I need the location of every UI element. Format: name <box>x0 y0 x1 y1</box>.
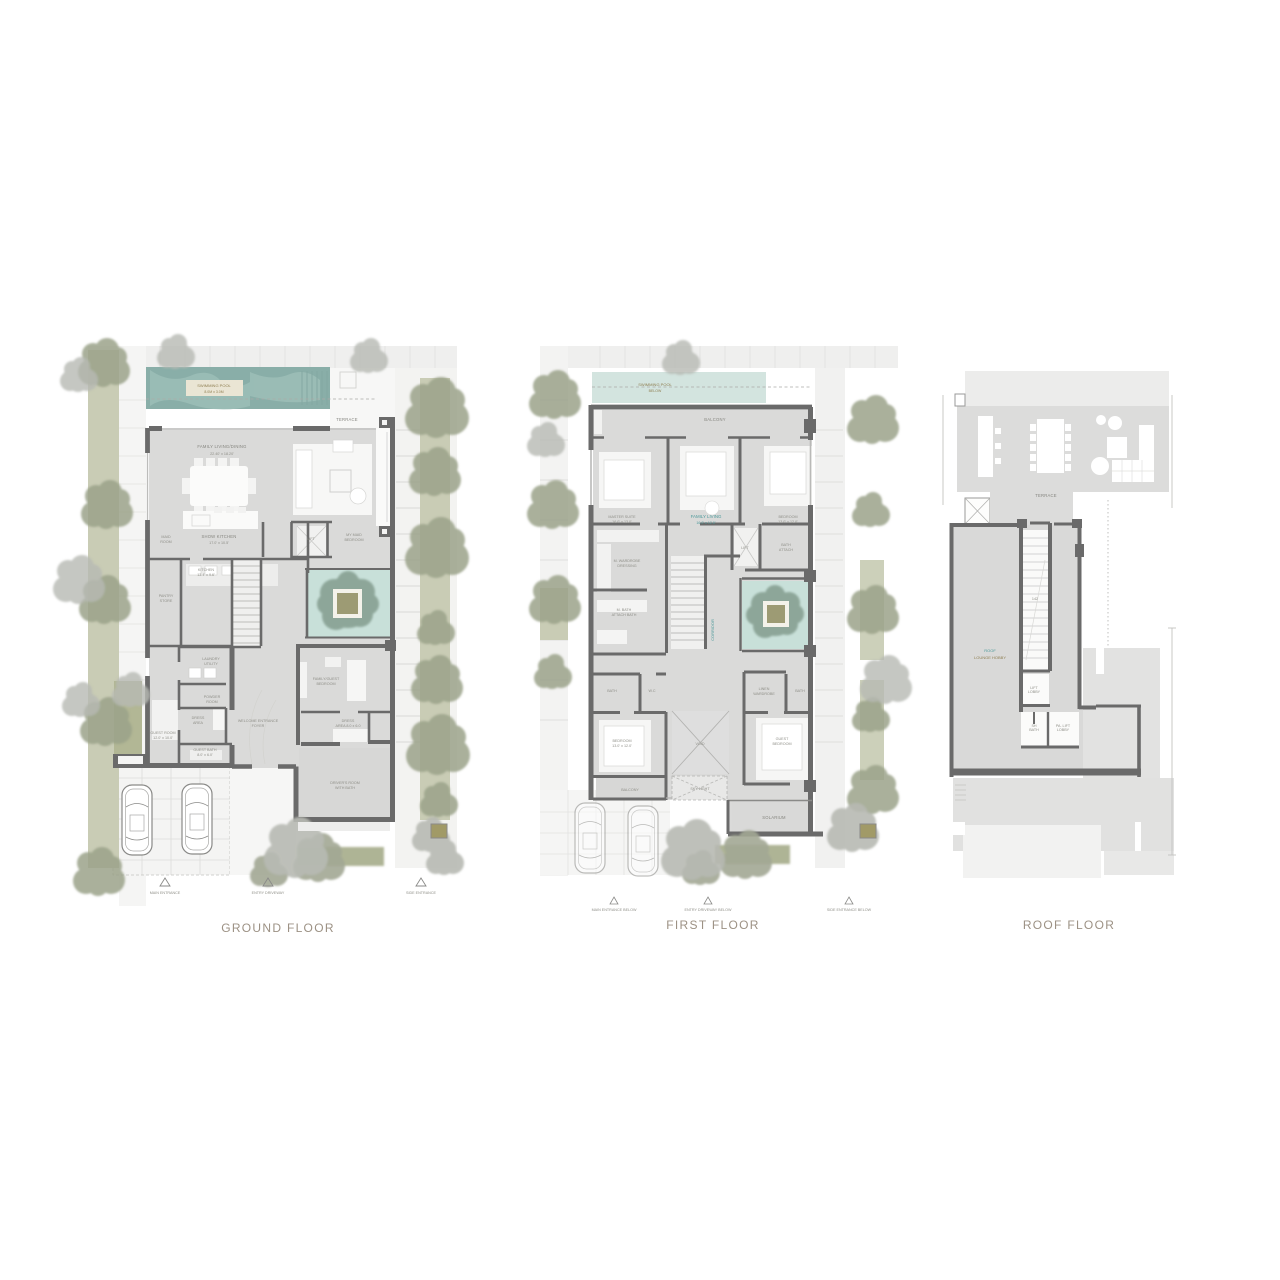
svg-text:MAIN ENTRANCE: MAIN ENTRANCE <box>150 891 181 895</box>
svg-text:SHOW KITCHEN: SHOW KITCHEN <box>202 534 237 539</box>
svg-text:POWDER: POWDER <box>204 695 221 699</box>
svg-text:12.0' x 10.0': 12.0' x 10.0' <box>153 736 173 740</box>
svg-text:17.0' x 10.5': 17.0' x 10.5' <box>209 541 229 545</box>
svg-text:GUEST BATH: GUEST BATH <box>193 748 217 752</box>
svg-text:MAID: MAID <box>161 535 171 539</box>
svg-text:ROOF: ROOF <box>984 648 996 653</box>
svg-text:SKY LIGHT: SKY LIGHT <box>690 787 710 791</box>
svg-text:W.C: W.C <box>649 689 656 693</box>
svg-text:DRESS: DRESS <box>192 716 205 720</box>
svg-text:BALCONY: BALCONY <box>704 417 725 422</box>
svg-text:8.0' x 6.0': 8.0' x 6.0' <box>197 753 213 757</box>
svg-text:ATTACH: ATTACH <box>779 548 794 552</box>
svg-text:VOID: VOID <box>695 742 704 746</box>
svg-text:GUEST ROOM: GUEST ROOM <box>150 731 175 735</box>
svg-text:13.4' x 9.6': 13.4' x 9.6' <box>197 573 215 577</box>
svg-text:BEDROOM: BEDROOM <box>778 515 797 519</box>
svg-text:LOBBY: LOBBY <box>1057 728 1070 732</box>
svg-text:142: 142 <box>1032 597 1038 601</box>
svg-text:ROOM: ROOM <box>206 700 217 704</box>
svg-text:ENTRY DRIVEWAY: ENTRY DRIVEWAY <box>252 891 285 895</box>
svg-text:DRESS: DRESS <box>342 719 355 723</box>
svg-text:22.40' x 18.20': 22.40' x 18.20' <box>210 452 234 456</box>
svg-text:STORE: STORE <box>160 599 173 603</box>
svg-text:GUEST: GUEST <box>776 737 789 741</box>
svg-text:DRESSING: DRESSING <box>617 564 636 568</box>
svg-text:BEDROOM: BEDROOM <box>316 682 335 686</box>
svg-text:BEDROOM: BEDROOM <box>612 739 631 743</box>
svg-text:BATH: BATH <box>1029 728 1039 732</box>
svg-text:TERRACE: TERRACE <box>336 417 357 422</box>
svg-text:SWIMMING POOL: SWIMMING POOL <box>197 383 231 388</box>
svg-text:8.0M x 3.0M: 8.0M x 3.0M <box>204 390 223 394</box>
svg-text:MASTER SUITE: MASTER SUITE <box>608 515 636 519</box>
svg-text:M. WARDROBE: M. WARDROBE <box>614 559 641 563</box>
svg-text:ROOM: ROOM <box>160 540 171 544</box>
svg-text:SOLARIUM: SOLARIUM <box>762 815 786 820</box>
svg-text:TERRACE: TERRACE <box>1035 493 1056 498</box>
svg-text:PANTRY: PANTRY <box>159 594 174 598</box>
svg-text:SWIMMING POOL: SWIMMING POOL <box>638 382 672 387</box>
svg-text:LOUNGE HOBBY: LOUNGE HOBBY <box>974 655 1006 660</box>
svg-text:SIDE ENTRANCE BELOW: SIDE ENTRANCE BELOW <box>827 908 872 912</box>
svg-text:LAUNDRY: LAUNDRY <box>202 657 220 661</box>
svg-text:WITH BATH: WITH BATH <box>335 786 355 790</box>
svg-text:13.0' x 12.0': 13.0' x 12.0' <box>612 744 632 748</box>
svg-text:M. BATH: M. BATH <box>617 608 632 612</box>
svg-text:ROOF FLOOR: ROOF FLOOR <box>1023 918 1115 932</box>
svg-text:LIFT: LIFT <box>307 537 315 541</box>
svg-text:ATTACH BATH: ATTACH BATH <box>612 613 637 617</box>
svg-text:BELOW: BELOW <box>649 389 662 393</box>
svg-text:MY MAID: MY MAID <box>346 533 362 537</box>
svg-text:FAMILY LIVING: FAMILY LIVING <box>691 514 722 519</box>
svg-text:FAMILY/GUEST: FAMILY/GUEST <box>313 677 340 681</box>
svg-text:AREA 8.0 x 6.0: AREA 8.0 x 6.0 <box>335 724 360 728</box>
svg-text:FIRST FLOOR: FIRST FLOOR <box>666 918 759 932</box>
svg-text:LINEN: LINEN <box>759 687 770 691</box>
svg-text:FAMILY LIVING/DINING: FAMILY LIVING/DINING <box>197 444 246 449</box>
svg-text:GROUND FLOOR: GROUND FLOOR <box>221 921 335 935</box>
svg-text:DRIVER'S ROOM: DRIVER'S ROOM <box>330 781 360 785</box>
svg-text:13.0' x 12.0': 13.0' x 12.0' <box>778 520 798 524</box>
svg-text:16.0' x 13.0': 16.0' x 13.0' <box>612 520 632 524</box>
svg-text:BATH: BATH <box>607 689 617 693</box>
svg-text:UTILITY: UTILITY <box>204 662 218 666</box>
svg-text:SIDE ENTRANCE: SIDE ENTRANCE <box>406 891 436 895</box>
svg-text:LIFT: LIFT <box>741 546 749 550</box>
svg-text:CORRIDOR: CORRIDOR <box>710 619 715 641</box>
svg-text:BEDROOM: BEDROOM <box>344 538 363 542</box>
svg-text:16.0' x 12.0': 16.0' x 12.0' <box>696 521 715 525</box>
svg-text:ENTRY DRIVEWAY BELOW: ENTRY DRIVEWAY BELOW <box>685 908 732 912</box>
svg-text:KITCHEN: KITCHEN <box>198 568 215 572</box>
svg-text:BALCONY: BALCONY <box>621 788 639 792</box>
svg-text:WELCOME ENTRANCE: WELCOME ENTRANCE <box>238 719 279 723</box>
svg-text:MAIN ENTRANCE BELOW: MAIN ENTRANCE BELOW <box>592 908 637 912</box>
svg-text:AREA: AREA <box>193 721 204 725</box>
svg-text:BEDROOM: BEDROOM <box>772 742 791 746</box>
svg-text:LOBBY: LOBBY <box>1028 690 1041 694</box>
svg-text:BATH: BATH <box>781 543 791 547</box>
svg-text:BATH: BATH <box>795 689 805 693</box>
svg-text:WARDROBE: WARDROBE <box>753 692 775 696</box>
svg-text:FOYER: FOYER <box>252 724 265 728</box>
